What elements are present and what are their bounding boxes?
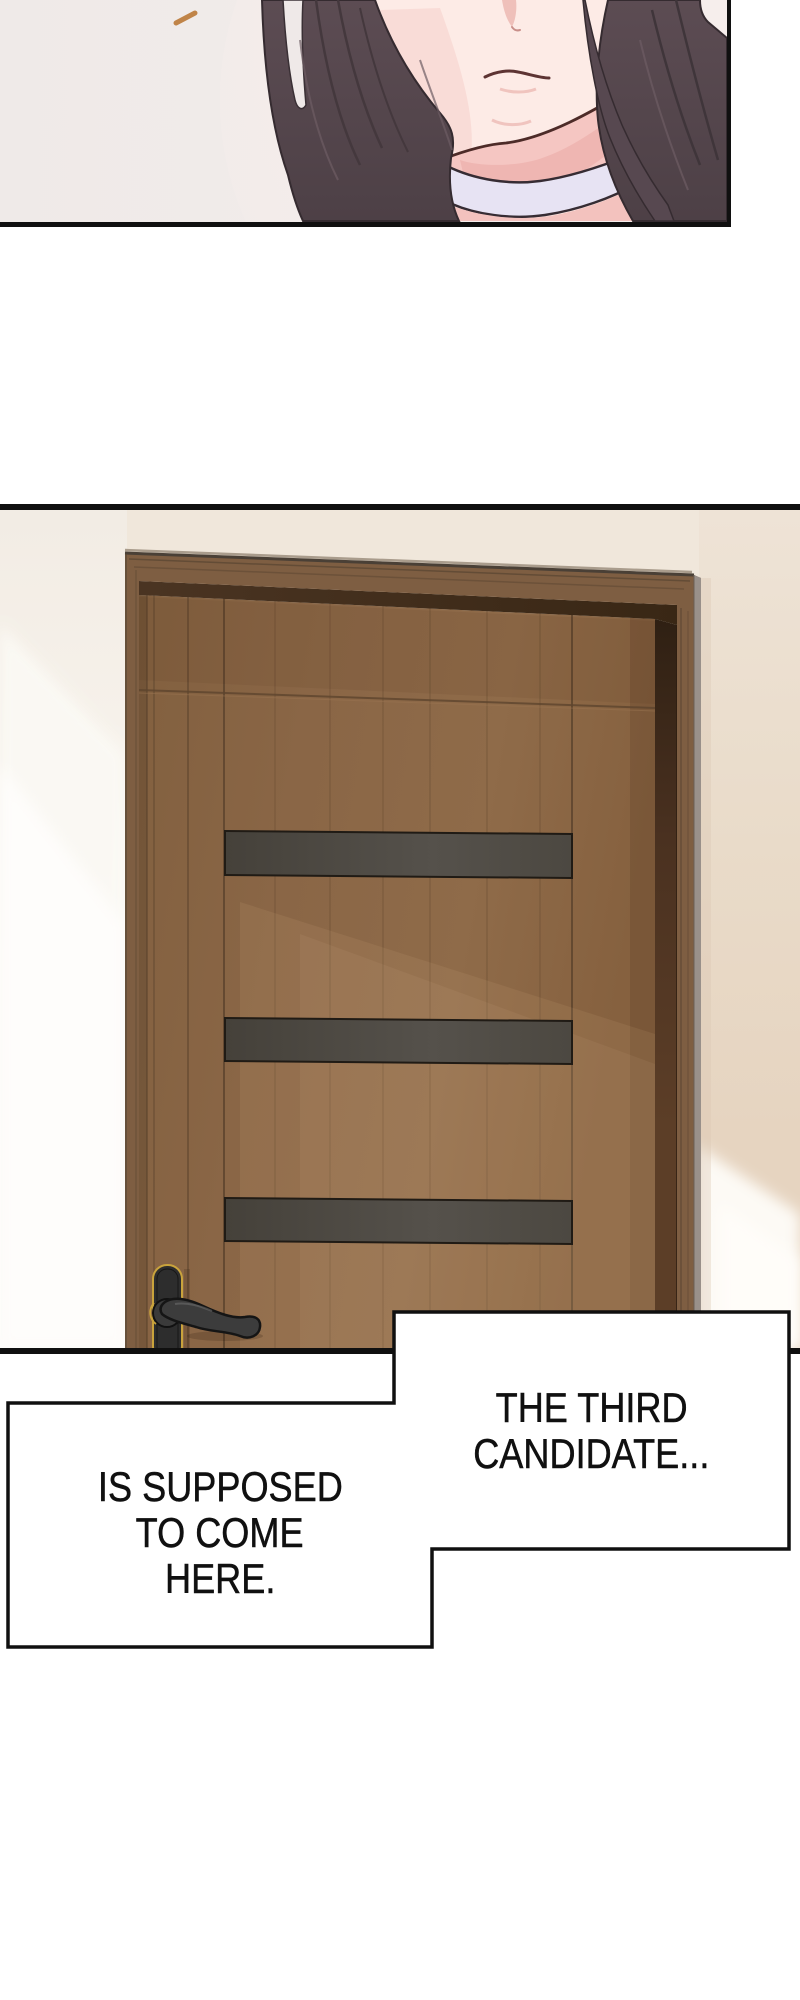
speech-bubble-right: THE THIRD CANDIDATE... [394, 1312, 789, 1549]
panel-border-top [0, 504, 800, 510]
bubble-line: IS SUPPOSED [98, 1464, 343, 1510]
webtoon-page: THE THIRD CANDIDATE... IS SUPPOSED TO CO… [0, 0, 800, 2000]
door [139, 589, 655, 1349]
bubble-line: HERE. [165, 1556, 275, 1602]
portrait-illustration [0, 0, 727, 222]
door-hinge-gap [655, 619, 677, 1348]
bubble-line: TO COME [136, 1510, 304, 1556]
bubble-line: CANDIDATE... [473, 1431, 709, 1477]
bubble-line: THE THIRD [496, 1385, 688, 1431]
door-illustration [0, 504, 800, 1354]
panel-portrait [0, 0, 731, 227]
panel-door-scene [0, 504, 800, 1354]
speech-bubble-left: IS SUPPOSED TO COME HERE. [8, 1403, 432, 1647]
